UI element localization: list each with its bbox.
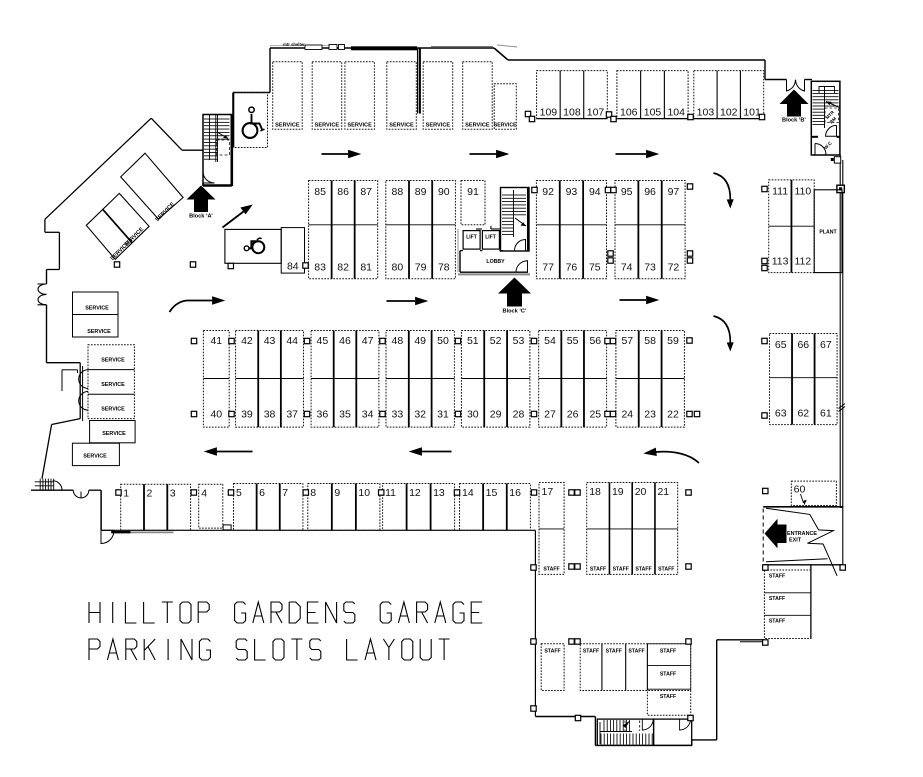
svg-text:113: 113 (772, 256, 789, 268)
svg-text:56: 56 (589, 335, 601, 347)
svg-text:90: 90 (438, 186, 450, 198)
svg-text:SERVICE: SERVICE (426, 123, 451, 129)
svg-text:86: 86 (337, 186, 349, 198)
svg-text:1: 1 (123, 488, 129, 500)
svg-text:27: 27 (544, 409, 556, 421)
svg-text:49: 49 (414, 335, 426, 347)
svg-text:84: 84 (287, 261, 299, 273)
svg-text:7: 7 (282, 487, 288, 499)
svg-text:Block ‘C’: Block ‘C’ (503, 309, 527, 315)
svg-text:109: 109 (540, 106, 558, 118)
svg-text:SERVICE: SERVICE (101, 382, 125, 388)
svg-text:STAFF: STAFF (544, 649, 560, 655)
svg-text:STAFF: STAFF (769, 619, 785, 625)
svg-text:63: 63 (775, 408, 787, 420)
svg-text:STAFF: STAFF (583, 649, 599, 655)
svg-text:80: 80 (392, 262, 404, 274)
svg-text:PLANT: PLANT (819, 230, 837, 236)
svg-text:32: 32 (414, 409, 426, 421)
svg-text:62: 62 (797, 408, 809, 420)
svg-text:25: 25 (589, 409, 601, 421)
svg-text:96: 96 (644, 186, 656, 198)
svg-text:101: 101 (743, 106, 761, 118)
svg-text:SERVICE: SERVICE (83, 454, 107, 460)
svg-text:79: 79 (415, 262, 427, 274)
svg-text:103: 103 (697, 106, 715, 118)
svg-text:17: 17 (542, 486, 554, 498)
svg-text:60: 60 (794, 484, 806, 496)
svg-text:50: 50 (437, 335, 449, 347)
svg-text:75: 75 (589, 262, 601, 274)
svg-text:22: 22 (667, 409, 679, 421)
svg-text:SERVICE: SERVICE (315, 123, 340, 129)
svg-text:92: 92 (542, 186, 554, 198)
svg-text:104: 104 (667, 106, 685, 118)
svg-text:37: 37 (286, 409, 298, 421)
svg-text:mtr shelter: mtr shelter (283, 42, 305, 47)
svg-text:SERVICE: SERVICE (465, 123, 490, 129)
svg-text:SERVICE: SERVICE (494, 123, 517, 129)
svg-text:39: 39 (241, 409, 253, 421)
svg-text:ENTRANCE: ENTRANCE (787, 531, 817, 537)
svg-text:STAFF: STAFF (660, 694, 676, 700)
svg-text:87: 87 (360, 186, 372, 198)
svg-text:13: 13 (433, 487, 445, 499)
svg-text:89: 89 (415, 186, 427, 198)
svg-text:STAFF: STAFF (769, 574, 785, 580)
svg-text:8: 8 (310, 487, 316, 499)
svg-text:83: 83 (314, 262, 326, 274)
svg-text:19: 19 (612, 486, 624, 498)
svg-text:20: 20 (635, 486, 647, 498)
svg-text:LOBBY: LOBBY (486, 259, 505, 265)
svg-text:34: 34 (362, 409, 374, 421)
svg-text:54: 54 (544, 335, 556, 347)
svg-text:10: 10 (358, 487, 370, 499)
svg-text:97: 97 (668, 186, 680, 198)
svg-text:STAFF: STAFF (660, 672, 676, 678)
svg-text:65: 65 (775, 339, 787, 351)
svg-text:SERVICE: SERVICE (87, 329, 111, 335)
svg-text:15: 15 (486, 487, 498, 499)
svg-text:6: 6 (259, 487, 265, 499)
svg-text:31: 31 (437, 409, 449, 421)
svg-text:STAFF: STAFF (769, 596, 785, 602)
svg-text:102: 102 (720, 106, 738, 118)
svg-text:SERVICE: SERVICE (389, 123, 414, 129)
svg-text:38: 38 (264, 409, 276, 421)
svg-text:9: 9 (334, 487, 340, 499)
svg-text:30: 30 (467, 409, 479, 421)
svg-text:35: 35 (339, 409, 351, 421)
svg-text:LIFT: LIFT (466, 235, 477, 241)
svg-text:111: 111 (772, 185, 788, 197)
svg-text:55: 55 (567, 335, 579, 347)
svg-text:3: 3 (170, 488, 176, 500)
svg-text:STAFF: STAFF (658, 567, 674, 573)
svg-text:21: 21 (657, 486, 669, 498)
svg-text:81: 81 (360, 262, 372, 274)
svg-text:SERVICE: SERVICE (85, 306, 109, 312)
svg-text:LIFT: LIFT (485, 235, 496, 241)
svg-text:EXIT: EXIT (789, 538, 802, 544)
svg-text:57: 57 (621, 335, 633, 347)
svg-text:88: 88 (392, 186, 404, 198)
svg-text:Block ‘B’: Block ‘B’ (782, 118, 806, 124)
svg-text:85: 85 (314, 186, 326, 198)
svg-text:33: 33 (392, 409, 404, 421)
svg-text:24: 24 (621, 409, 633, 421)
svg-text:67: 67 (820, 339, 832, 351)
svg-text:SERVICE: SERVICE (102, 431, 126, 437)
svg-text:41: 41 (210, 335, 222, 347)
svg-text:53: 53 (513, 335, 525, 347)
svg-text:STAFF: STAFF (590, 567, 606, 573)
svg-text:23: 23 (644, 409, 656, 421)
svg-text:82: 82 (337, 262, 349, 274)
svg-text:42: 42 (241, 335, 253, 347)
svg-text:28: 28 (513, 409, 525, 421)
svg-text:40: 40 (210, 409, 222, 421)
svg-text:12: 12 (409, 487, 421, 499)
svg-text:29: 29 (490, 409, 502, 421)
svg-text:95: 95 (621, 186, 633, 198)
svg-text:26: 26 (567, 409, 579, 421)
svg-text:STAFF: STAFF (660, 649, 676, 655)
svg-text:STAFF: STAFF (543, 567, 559, 573)
svg-text:SERVICE: SERVICE (101, 407, 125, 413)
svg-text:107: 107 (587, 106, 605, 118)
svg-text:16: 16 (509, 487, 521, 499)
svg-text:STAFF: STAFF (635, 567, 651, 573)
svg-text:93: 93 (566, 186, 578, 198)
svg-text:108: 108 (563, 106, 581, 118)
svg-text:STAFF: STAFF (606, 649, 622, 655)
svg-text:105: 105 (644, 106, 662, 118)
svg-text:106: 106 (620, 106, 638, 118)
svg-text:61: 61 (820, 408, 832, 420)
svg-text:76: 76 (566, 262, 578, 274)
svg-text:SERVICE: SERVICE (101, 358, 125, 364)
svg-text:66: 66 (797, 339, 809, 351)
svg-text:11: 11 (385, 487, 396, 499)
svg-text:SERVICE: SERVICE (275, 123, 300, 129)
svg-text:18: 18 (589, 486, 601, 498)
svg-text:45: 45 (317, 335, 329, 347)
svg-text:58: 58 (644, 335, 656, 347)
svg-text:43: 43 (264, 335, 276, 347)
svg-text:52: 52 (490, 335, 502, 347)
svg-text:110: 110 (794, 185, 811, 197)
svg-text:73: 73 (644, 262, 656, 274)
svg-text:5: 5 (236, 487, 242, 499)
svg-text:36: 36 (317, 409, 329, 421)
svg-text:47: 47 (362, 335, 374, 347)
svg-text:SERVICE: SERVICE (347, 123, 372, 129)
svg-text:Block ‘A’: Block ‘A’ (189, 214, 213, 220)
svg-text:46: 46 (339, 335, 351, 347)
svg-text:94: 94 (589, 186, 601, 198)
svg-text:STAFF: STAFF (628, 649, 644, 655)
svg-text:STAFF: STAFF (613, 567, 629, 573)
svg-text:91: 91 (467, 186, 479, 198)
svg-text:78: 78 (438, 262, 450, 274)
svg-text:74: 74 (621, 262, 633, 274)
svg-text:4: 4 (201, 488, 207, 500)
svg-text:48: 48 (392, 335, 404, 347)
svg-text:59: 59 (667, 335, 679, 347)
svg-text:44: 44 (286, 335, 298, 347)
svg-text:51: 51 (467, 335, 479, 347)
svg-text:72: 72 (668, 262, 680, 274)
svg-text:2: 2 (147, 488, 153, 500)
svg-text:14: 14 (462, 487, 474, 499)
svg-text:112: 112 (794, 256, 811, 268)
svg-text:77: 77 (542, 262, 554, 274)
